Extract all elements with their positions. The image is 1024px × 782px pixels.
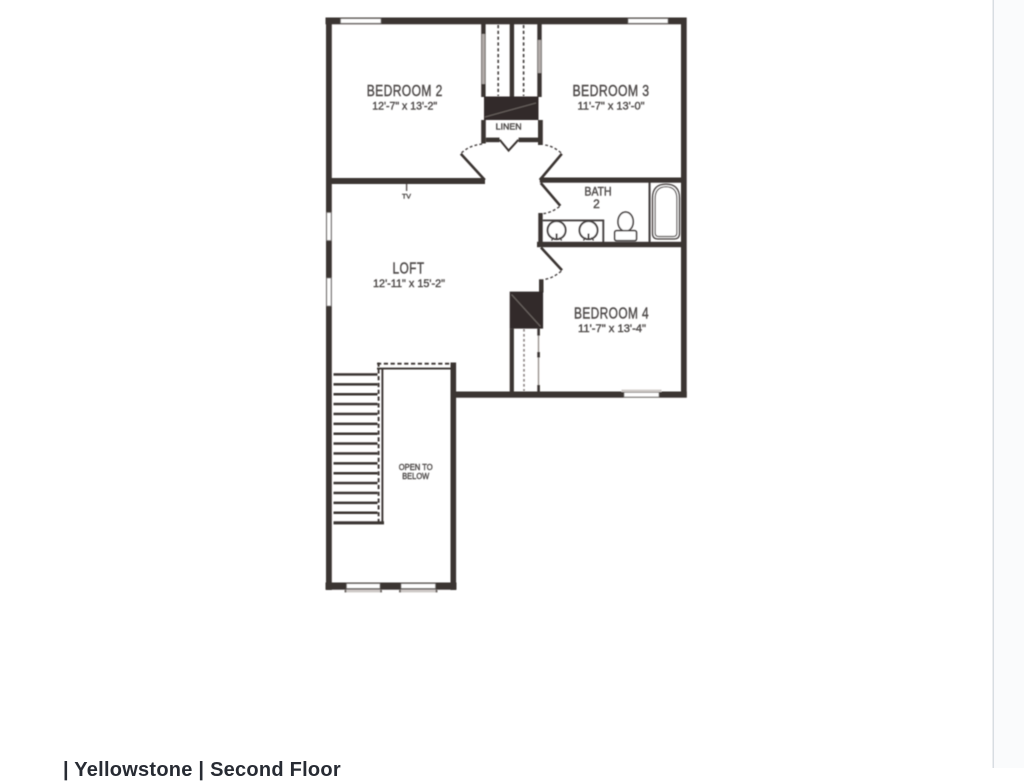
svg-text:TV: TV [402,194,411,201]
svg-text:LOFT: LOFT [393,261,425,278]
svg-text:BELOW: BELOW [402,471,429,481]
svg-text:BEDROOM 3: BEDROOM 3 [573,83,650,100]
svg-text:12'-11" x 15'-2": 12'-11" x 15'-2" [373,278,445,290]
svg-text:BEDROOM 4: BEDROOM 4 [574,306,649,323]
svg-text:BEDROOM 2: BEDROOM 2 [367,83,443,100]
svg-text:11'-7" x 13'-4": 11'-7" x 13'-4" [578,323,646,335]
svg-text:LINEN: LINEN [496,123,522,132]
svg-text:12'-7" x 13'-2": 12'-7" x 13'-2" [372,100,437,112]
svg-text:11'-7" x 13'-0": 11'-7" x 13'-0" [578,100,645,112]
svg-text:2: 2 [593,197,600,211]
